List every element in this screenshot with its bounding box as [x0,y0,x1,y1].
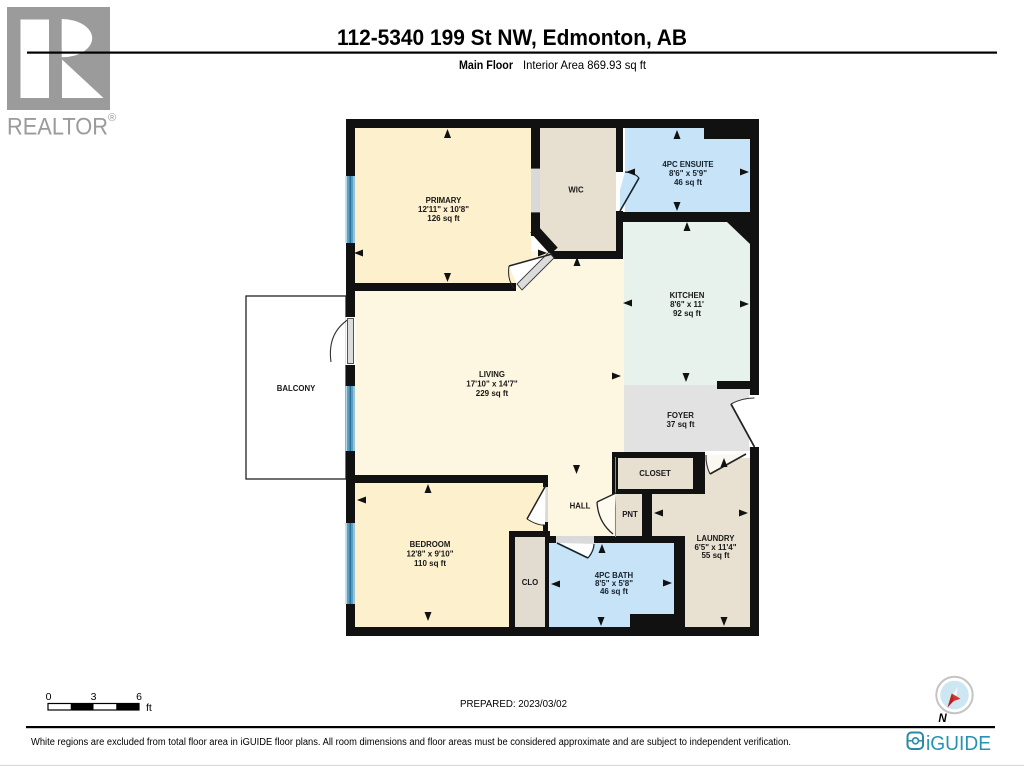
svg-text:CLOSET: CLOSET [639,469,671,478]
svg-text:46 sq ft: 46 sq ft [600,587,628,596]
svg-text:112-5340 199 St NW, Edmonton,: 112-5340 199 St NW, Edmonton, AB [337,25,687,50]
svg-text:37 sq ft: 37 sq ft [666,420,694,429]
svg-text:4PC ENSUITE: 4PC ENSUITE [662,160,713,169]
svg-text:CLO: CLO [522,578,538,587]
svg-text:ft: ft [146,702,152,714]
svg-text:White regions are excluded fro: White regions are excluded from total fl… [31,737,791,748]
svg-text:46 sq ft: 46 sq ft [674,178,702,187]
svg-text:Main Floor: Main Floor [459,58,513,72]
svg-text:8'6" x 11': 8'6" x 11' [670,300,704,309]
svg-text:BEDROOM: BEDROOM [410,540,451,549]
svg-text:126 sq ft: 126 sq ft [427,214,460,223]
svg-text:110 sq ft: 110 sq ft [414,559,446,568]
svg-text:55 sq ft: 55 sq ft [701,551,729,560]
svg-text:6: 6 [136,691,142,703]
svg-text:PNT: PNT [622,510,638,519]
svg-text:12'8" x 9'10": 12'8" x 9'10" [407,550,454,559]
svg-text:8'6" x 5'9": 8'6" x 5'9" [669,169,707,178]
svg-text:PRIMARY: PRIMARY [426,196,462,205]
svg-text:229 sq ft: 229 sq ft [476,389,509,398]
svg-text:3: 3 [91,691,97,703]
svg-text:N: N [938,713,947,725]
svg-text:iGUIDE: iGUIDE [926,733,991,755]
svg-text:HALL: HALL [570,502,591,511]
svg-text:PREPARED: 2023/03/02: PREPARED: 2023/03/02 [460,699,567,710]
svg-text:®: ® [108,112,116,124]
svg-text:KITCHEN: KITCHEN [670,291,705,300]
svg-text:Interior Area 869.93 sq ft: Interior Area 869.93 sq ft [523,58,647,72]
svg-text:92 sq ft: 92 sq ft [673,309,701,318]
svg-text:BALCONY: BALCONY [277,384,316,393]
svg-text:FOYER: FOYER [667,411,694,420]
svg-text:WIC: WIC [568,186,584,195]
svg-text:17'10" x 14'7": 17'10" x 14'7" [466,380,518,389]
svg-text:LAUNDRY: LAUNDRY [697,534,736,543]
svg-text:LIVING: LIVING [479,370,505,379]
svg-text:0: 0 [46,691,52,703]
svg-text:12'11" x 10'8": 12'11" x 10'8" [418,205,469,214]
svg-text:REALTOR: REALTOR [7,114,108,141]
